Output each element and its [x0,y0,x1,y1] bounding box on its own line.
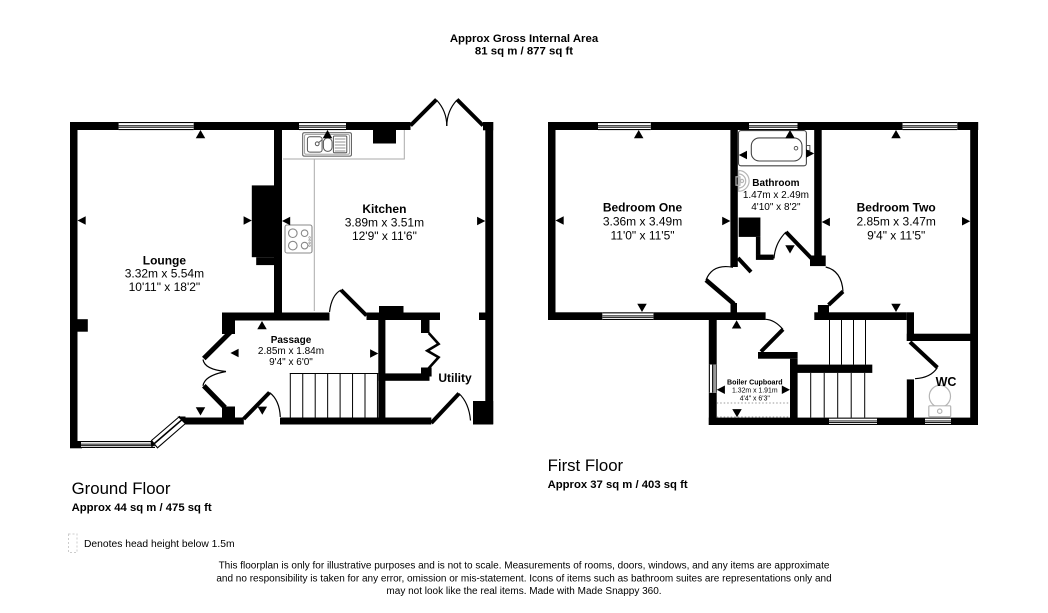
svg-text:Bedroom Two: Bedroom Two [857,201,936,215]
svg-text:may not look like the real ite: may not look like the real items. Made w… [386,586,661,597]
svg-text:Ground Floor: Ground Floor [72,479,171,498]
svg-text:1.47m x 2.49m: 1.47m x 2.49m [743,190,809,201]
svg-text:3.36m x 3.49m: 3.36m x 3.49m [603,215,682,229]
svg-text:Denotes head height below 1.5m: Denotes head height below 1.5m [84,539,235,550]
svg-text:WC: WC [936,375,957,389]
svg-text:First Floor: First Floor [548,456,624,475]
svg-text:12'9" x 11'6": 12'9" x 11'6" [352,229,417,243]
svg-text:10'11" x 18'2": 10'11" x 18'2" [129,280,201,294]
svg-text:3.32m x 5.54m: 3.32m x 5.54m [125,267,204,281]
svg-text:Bedroom One: Bedroom One [603,201,683,215]
svg-text:Approx 44 sq m / 475 sq ft: Approx 44 sq m / 475 sq ft [72,502,212,514]
svg-text:2.85m x 1.84m: 2.85m x 1.84m [258,346,324,357]
svg-text:and no responsibility is taken: and no responsibility is taken for any e… [216,574,831,585]
svg-text:4'4" x 6'3": 4'4" x 6'3" [740,396,771,403]
svg-text:Approx Gross Internal Area: Approx Gross Internal Area [450,33,599,45]
svg-text:9'4" x 6'0": 9'4" x 6'0" [269,357,313,368]
svg-text:Approx 37 sq m / 403 sq ft: Approx 37 sq m / 403 sq ft [548,479,688,491]
svg-text:Kitchen: Kitchen [362,202,406,216]
svg-text:2.85m x 3.47m: 2.85m x 3.47m [857,215,936,229]
svg-text:1.32m x 1.91m: 1.32m x 1.91m [732,388,778,395]
svg-text:Boiler Cupboard: Boiler Cupboard [727,379,783,387]
svg-text:Utility: Utility [438,371,472,385]
svg-text:Lounge: Lounge [143,253,187,267]
svg-text:Passage: Passage [271,335,312,346]
svg-text:4'10" x 8'2": 4'10" x 8'2" [751,202,801,213]
svg-text:3.89m x 3.51m: 3.89m x 3.51m [345,215,424,229]
svg-text:9'4" x 11'5": 9'4" x 11'5" [867,228,925,242]
svg-text:81 sq m / 877 sq ft: 81 sq m / 877 sq ft [475,46,573,58]
svg-text:Bathroom: Bathroom [752,178,799,189]
svg-text:11'0" x 11'5": 11'0" x 11'5" [610,228,674,242]
svg-text:This floorplan is only for ill: This floorplan is only for illustrative … [219,561,830,572]
